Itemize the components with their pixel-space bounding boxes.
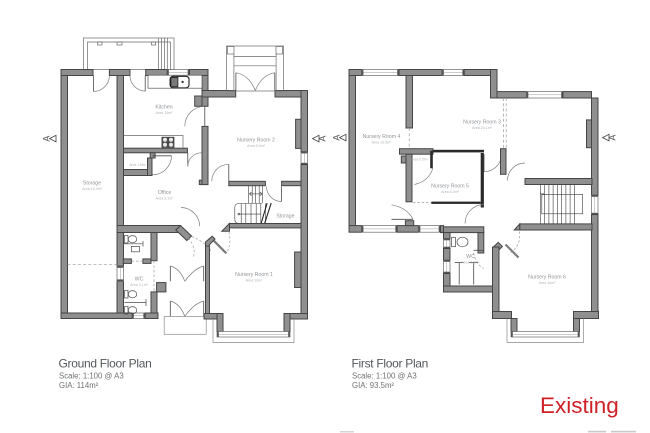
- svg-text:Area 10.5m²: Area 10.5m²: [372, 141, 393, 145]
- svg-text:Area 3.8m²: Area 3.8m²: [462, 260, 481, 264]
- svg-text:Area 1.5m²: Area 1.5m²: [129, 163, 146, 167]
- svg-text:First Floor Plan: First Floor Plan: [352, 357, 429, 371]
- svg-text:Scale: 1:100 @ A3: Scale: 1:100 @ A3: [59, 372, 124, 381]
- svg-text:Scale: 1:100 @ A3: Scale: 1:100 @ A3: [352, 372, 417, 381]
- svg-text:Area 19m²: Area 19m²: [246, 279, 264, 283]
- svg-text:Nursery Room 6: Nursery Room 6: [528, 275, 566, 281]
- svg-text:Nursery Room 5: Nursery Room 5: [431, 184, 469, 190]
- svg-text:Area 8.1m²: Area 8.1m²: [156, 197, 175, 201]
- svg-text:Area 3.1m²: Area 3.1m²: [130, 283, 149, 287]
- svg-text:Area 0.5m²: Area 0.5m²: [411, 158, 428, 162]
- svg-text:A: A: [331, 135, 341, 141]
- svg-text:GIA: 93.5m²: GIA: 93.5m²: [352, 381, 394, 390]
- svg-text:A: A: [41, 136, 51, 142]
- svg-text:Nursery Room 3: Nursery Room 3: [463, 120, 501, 126]
- svg-text:Nursery Room 1: Nursery Room 1: [235, 272, 273, 278]
- svg-text:Storage: Storage: [83, 181, 101, 187]
- svg-text:Area 16m²: Area 16m²: [539, 281, 557, 285]
- svg-text:Area 15.4m²: Area 15.4m²: [82, 187, 103, 191]
- svg-text:A: A: [317, 136, 327, 142]
- svg-text:WC: WC: [466, 254, 475, 260]
- svg-text:Ground Floor Plan: Ground Floor Plan: [59, 357, 152, 371]
- svg-text:Area 9.0m²: Area 9.0m²: [247, 144, 266, 148]
- svg-text:GIA: 114m²: GIA: 114m²: [59, 381, 99, 390]
- svg-text:A: A: [607, 135, 617, 141]
- svg-text:Area 10m²: Area 10m²: [156, 111, 174, 115]
- svg-text:Existing: Existing: [540, 393, 619, 418]
- svg-text:Nursery Room 4: Nursery Room 4: [363, 134, 401, 140]
- svg-text:Area 6.5m²: Area 6.5m²: [441, 190, 460, 194]
- svg-text:Nursery Room 2: Nursery Room 2: [237, 138, 275, 144]
- svg-text:Office: Office: [158, 190, 172, 196]
- svg-text:WC: WC: [135, 277, 144, 283]
- svg-text:Area 20.1m²: Area 20.1m²: [472, 126, 493, 130]
- svg-text:Kitchen: Kitchen: [155, 105, 172, 111]
- svg-text:Storage: Storage: [276, 214, 294, 220]
